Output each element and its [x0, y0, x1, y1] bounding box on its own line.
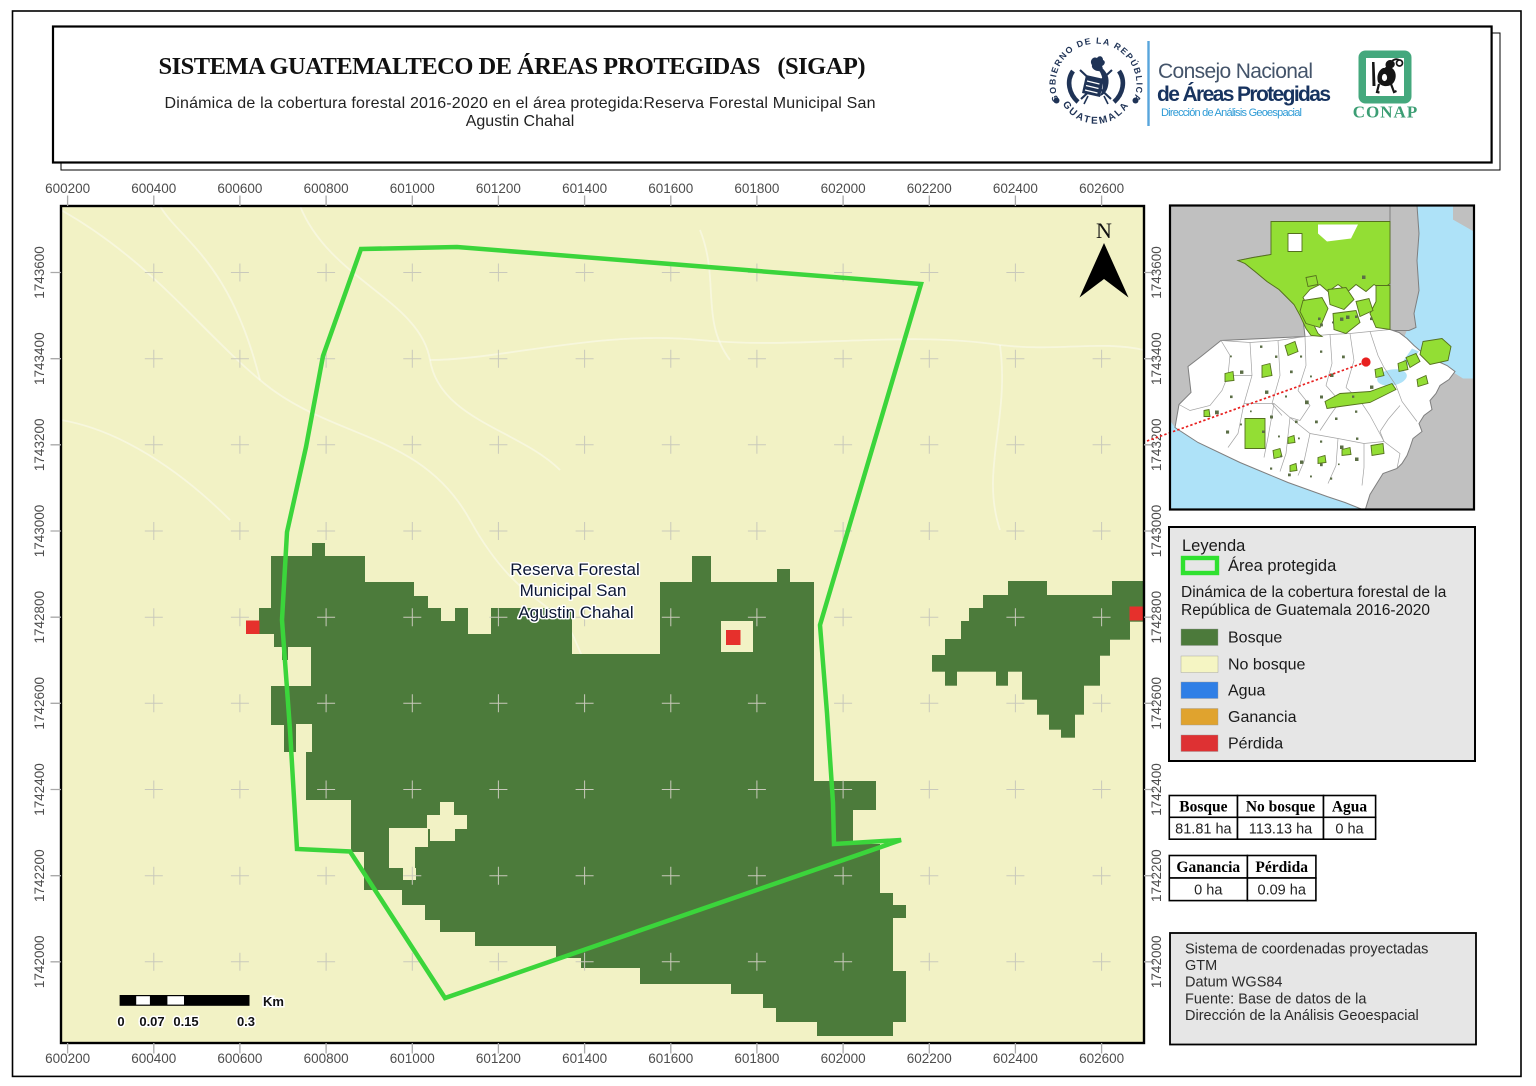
svg-text:Ganancia: Ganancia: [1228, 709, 1297, 726]
svg-text:600400: 600400: [131, 181, 176, 196]
svg-text:Datum WGS84: Datum WGS84: [1185, 975, 1283, 991]
svg-text:CONAP: CONAP: [1353, 103, 1418, 122]
svg-text:1742000: 1742000: [1149, 936, 1164, 989]
svg-text:602400: 602400: [993, 181, 1038, 196]
svg-text:Fuente: Base de datos de la: Fuente: Base de datos de la: [1185, 991, 1367, 1007]
svg-text:600200: 600200: [45, 181, 90, 196]
svg-text:Reserva Forestal: Reserva Forestal: [510, 560, 639, 579]
svg-text:Dirección de Análisis Geoespac: Dirección de Análisis Geoespacial: [1161, 107, 1302, 119]
svg-text:1742400: 1742400: [1149, 763, 1164, 816]
svg-text:1743600: 1743600: [32, 246, 47, 299]
svg-text:600800: 600800: [304, 181, 349, 196]
svg-text:0.15: 0.15: [173, 1014, 198, 1029]
svg-text:Dirección de la Análisis Geoes: Dirección de la Análisis Geoespacial: [1185, 1008, 1419, 1024]
svg-text:1742200: 1742200: [1149, 849, 1164, 902]
svg-text:601200: 601200: [476, 181, 521, 196]
svg-text:Área protegida: Área protegida: [1228, 556, 1337, 575]
svg-text:601000: 601000: [390, 181, 435, 196]
svg-text:601800: 601800: [734, 181, 779, 196]
svg-text:601400: 601400: [562, 181, 607, 196]
svg-text:1743000: 1743000: [1149, 505, 1164, 558]
svg-text:601600: 601600: [648, 1051, 693, 1066]
svg-text:602200: 602200: [907, 181, 952, 196]
svg-text:601800: 601800: [734, 1051, 779, 1066]
svg-text:602600: 602600: [1079, 181, 1124, 196]
svg-text:1743400: 1743400: [1149, 332, 1164, 385]
svg-text:Consejo Nacional: Consejo Nacional: [1158, 60, 1313, 83]
svg-text:SISTEMA GUATEMALTECO DE ÁREAS: SISTEMA GUATEMALTECO DE ÁREAS PROTEGIDAS…: [159, 52, 866, 80]
svg-text:No bosque: No bosque: [1228, 657, 1305, 674]
svg-text:Agua: Agua: [1228, 683, 1265, 700]
svg-text:Dinámica de la cobertura fores: Dinámica de la cobertura forestal 2016-2…: [165, 95, 876, 112]
svg-text:1742000: 1742000: [32, 936, 47, 989]
svg-text:1743600: 1743600: [1149, 246, 1164, 299]
svg-text:1742800: 1742800: [1149, 591, 1164, 644]
svg-text:0.07: 0.07: [139, 1014, 164, 1029]
svg-text:1742400: 1742400: [32, 763, 47, 816]
svg-text:1742800: 1742800: [32, 591, 47, 644]
svg-text:Pérdida: Pérdida: [1228, 736, 1283, 753]
svg-text:N: N: [1096, 218, 1112, 243]
svg-text:1742200: 1742200: [32, 849, 47, 902]
svg-text:Sistema de coordenadas proyect: Sistema de coordenadas proyectadas: [1185, 942, 1428, 958]
svg-text:81.81 ha: 81.81 ha: [1175, 821, 1232, 837]
svg-text:601600: 601600: [648, 181, 693, 196]
svg-text:0.3: 0.3: [237, 1014, 255, 1029]
svg-text:600200: 600200: [45, 1051, 90, 1066]
svg-text:Ganancia: Ganancia: [1176, 859, 1240, 876]
svg-text:602000: 602000: [821, 181, 866, 196]
svg-text:0: 0: [117, 1014, 124, 1029]
svg-text:Agustin Chahal: Agustin Chahal: [466, 113, 575, 130]
svg-text:1743200: 1743200: [1149, 419, 1164, 472]
svg-text:600400: 600400: [131, 1051, 176, 1066]
svg-text:Bosque: Bosque: [1179, 799, 1227, 816]
svg-text:Km: Km: [263, 994, 284, 1009]
svg-text:Municipal San: Municipal San: [520, 581, 627, 600]
svg-text:600600: 600600: [217, 1051, 262, 1066]
svg-text:de Áreas Protegidas: de Áreas Protegidas: [1157, 83, 1331, 106]
svg-text:601000: 601000: [390, 1051, 435, 1066]
svg-text:600600: 600600: [217, 181, 262, 196]
svg-text:GTM: GTM: [1185, 958, 1217, 974]
svg-text:República de Guatemala 2016-20: República de Guatemala 2016-2020: [1181, 602, 1430, 619]
svg-text:601400: 601400: [562, 1051, 607, 1066]
svg-text:No bosque: No bosque: [1246, 799, 1315, 816]
svg-text:602200: 602200: [907, 1051, 952, 1066]
svg-text:602000: 602000: [821, 1051, 866, 1066]
svg-text:0 ha: 0 ha: [1335, 821, 1364, 837]
svg-text:0 ha: 0 ha: [1194, 883, 1223, 899]
svg-text:1743200: 1743200: [32, 419, 47, 472]
svg-text:1742600: 1742600: [32, 677, 47, 730]
svg-text:602600: 602600: [1079, 1051, 1124, 1066]
svg-text:600800: 600800: [304, 1051, 349, 1066]
svg-text:Leyenda: Leyenda: [1182, 537, 1246, 555]
svg-text:Pérdida: Pérdida: [1255, 859, 1308, 876]
svg-text:1743000: 1743000: [32, 505, 47, 558]
svg-text:Bosque: Bosque: [1228, 630, 1282, 647]
svg-text:Agua: Agua: [1332, 799, 1368, 816]
svg-text:1743400: 1743400: [32, 332, 47, 385]
svg-text:Dinámica de la cobertura fores: Dinámica de la cobertura forestal de la: [1181, 584, 1447, 601]
svg-text:601200: 601200: [476, 1051, 521, 1066]
svg-text:Agustin Chahal: Agustin Chahal: [518, 603, 633, 622]
svg-text:1742600: 1742600: [1149, 677, 1164, 730]
svg-text:113.13 ha: 113.13 ha: [1249, 821, 1313, 837]
svg-text:602400: 602400: [993, 1051, 1038, 1066]
svg-text:0.09 ha: 0.09 ha: [1258, 883, 1307, 899]
